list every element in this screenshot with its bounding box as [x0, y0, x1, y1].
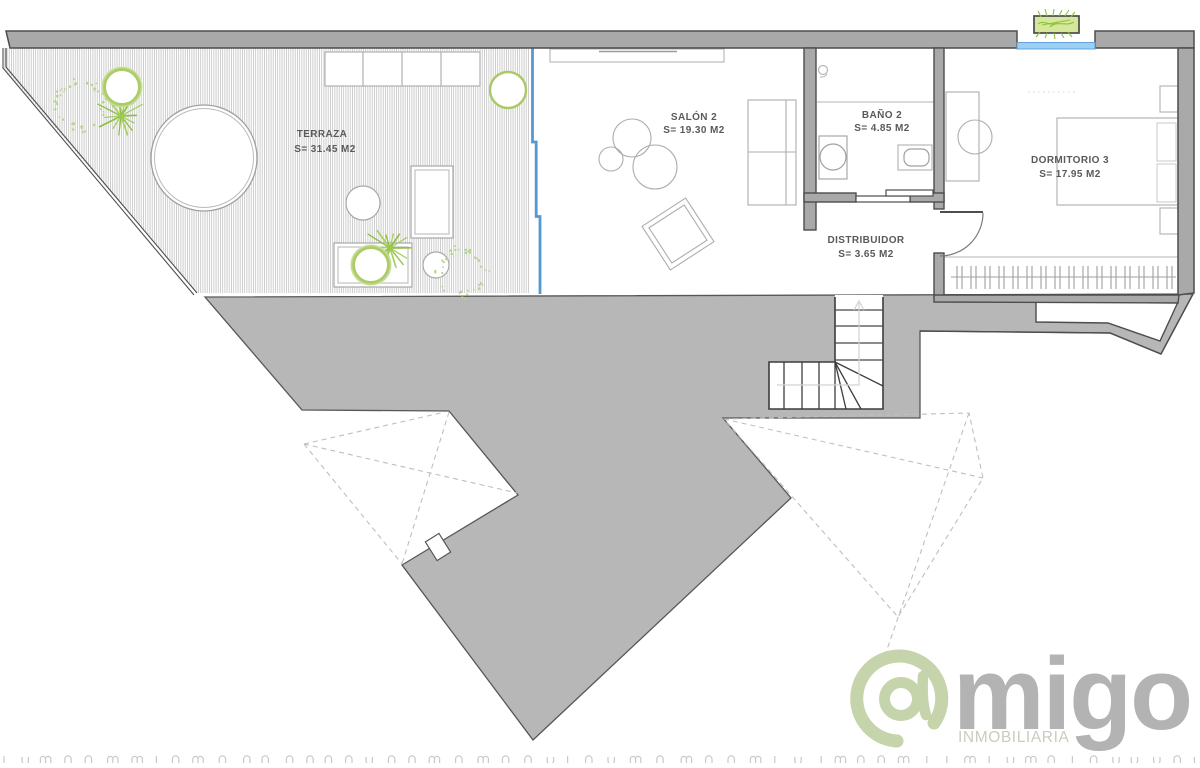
svg-text:S= 19.30 M2: S= 19.30 M2 [663, 125, 724, 136]
svg-text:BAÑO 2: BAÑO 2 [862, 108, 902, 121]
svg-text:DORMITORIO 3: DORMITORIO 3 [1031, 155, 1109, 166]
svg-text:S= 4.85 M2: S= 4.85 M2 [854, 123, 909, 134]
svg-text:S= 3.65 M2: S= 3.65 M2 [838, 249, 893, 260]
svg-text:S= 17.95 M2: S= 17.95 M2 [1039, 169, 1100, 180]
svg-text:DISTRIBUIDOR: DISTRIBUIDOR [827, 235, 904, 246]
svg-text:TERRAZA: TERRAZA [297, 129, 348, 140]
svg-text:INMOBILIARIA: INMOBILIARIA [958, 729, 1069, 746]
svg-text:SALÓN 2: SALÓN 2 [671, 110, 717, 123]
svg-text:S= 31.45 M2: S= 31.45 M2 [294, 144, 355, 155]
